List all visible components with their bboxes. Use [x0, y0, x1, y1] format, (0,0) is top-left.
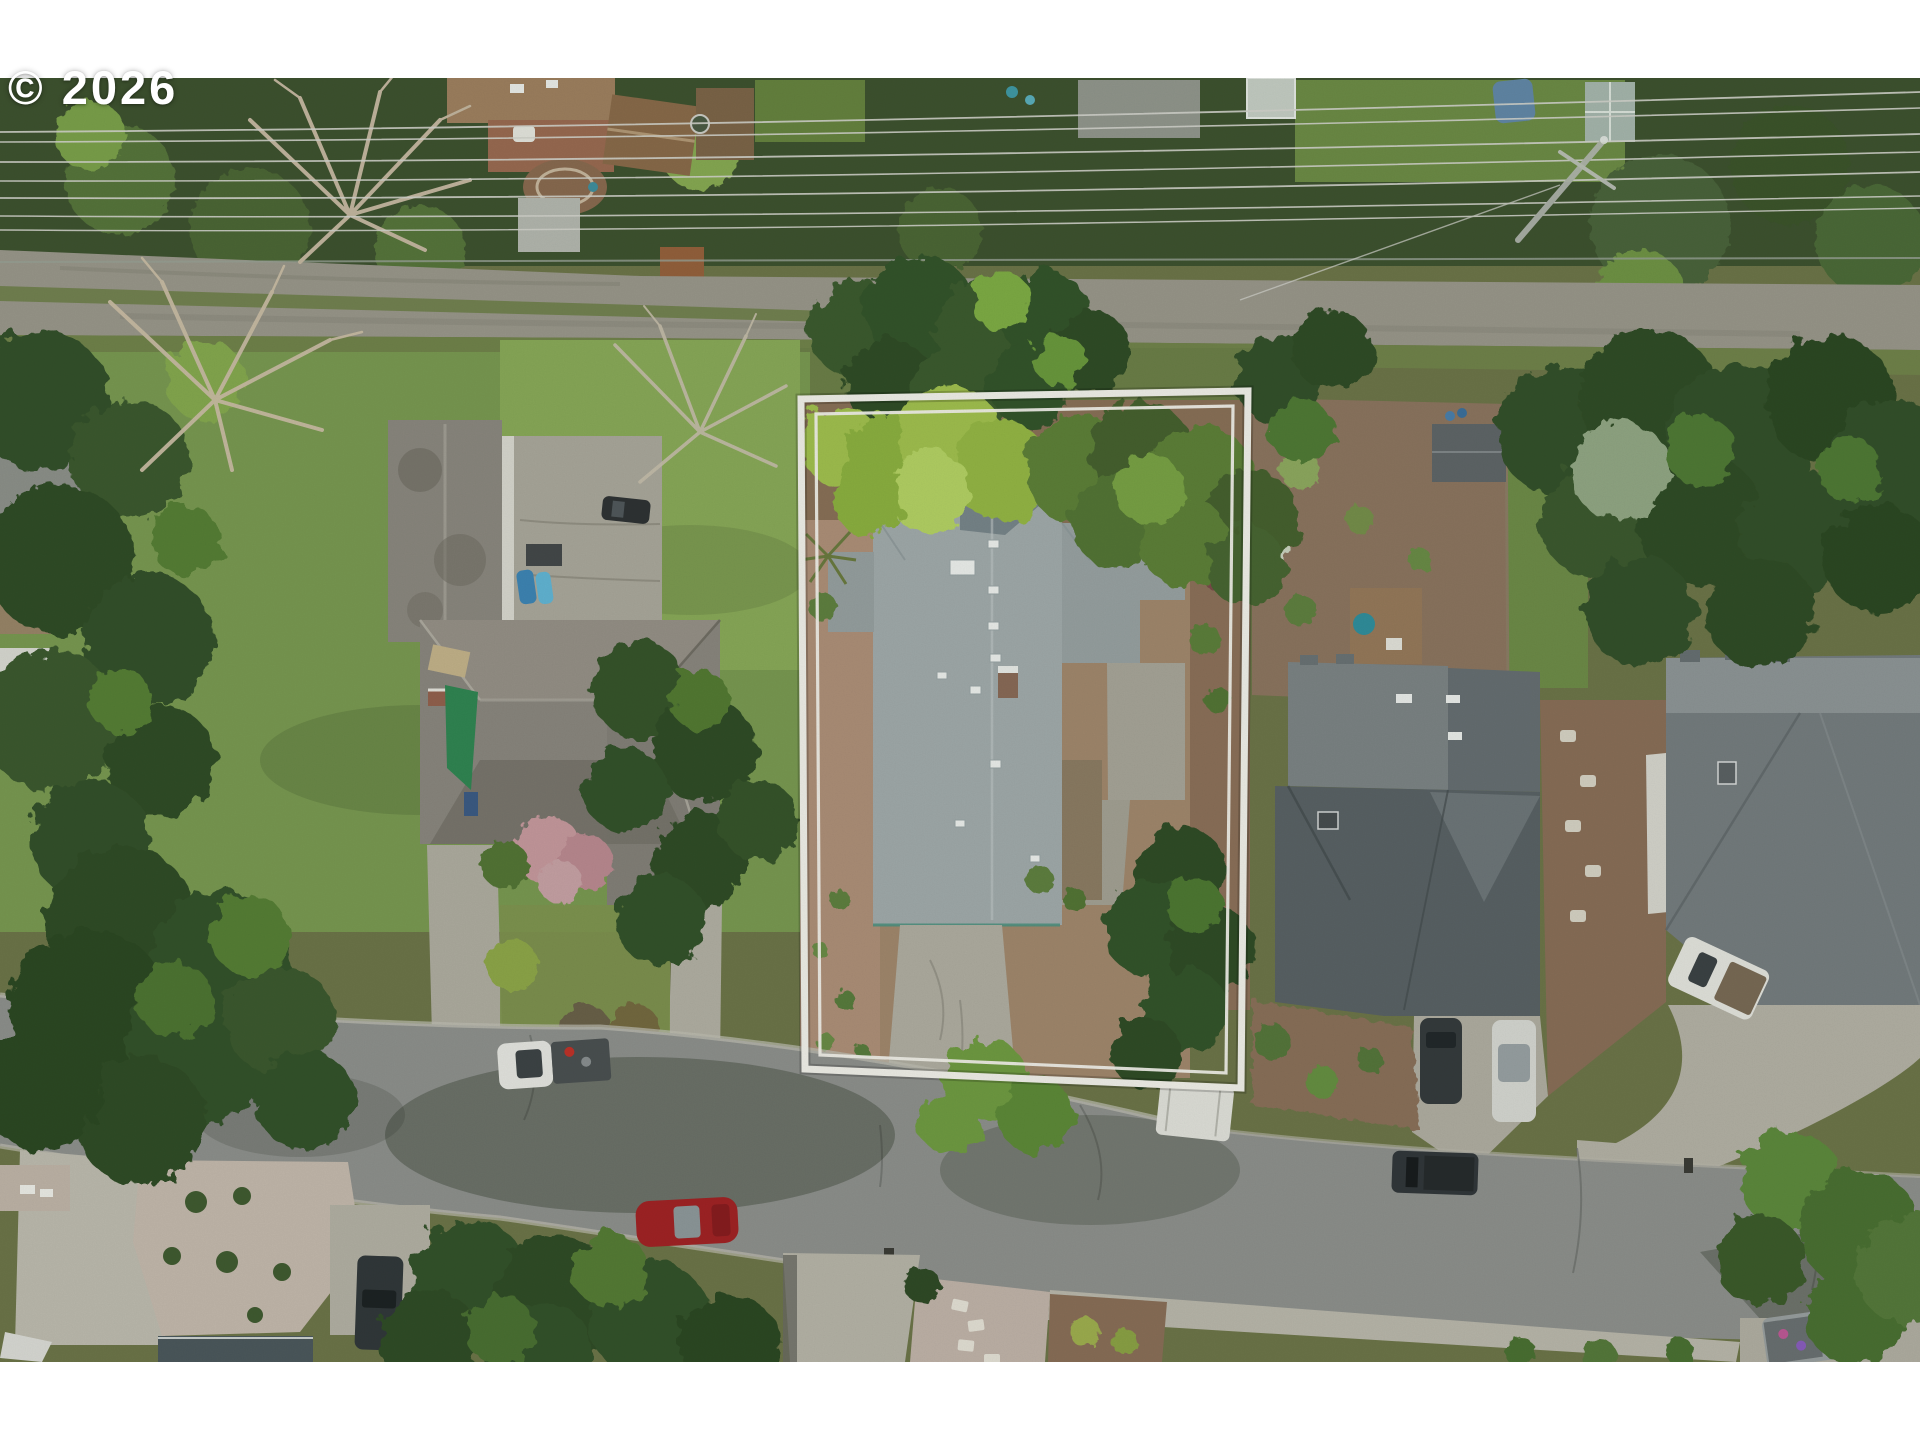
aerial-photo: [0, 0, 1920, 1440]
letterbox-bottom: [0, 1362, 1920, 1440]
letterbox-top: [0, 0, 1920, 78]
copyright-watermark: © 2026: [8, 60, 178, 115]
screenshot-root: © 2026: [0, 0, 1920, 1440]
